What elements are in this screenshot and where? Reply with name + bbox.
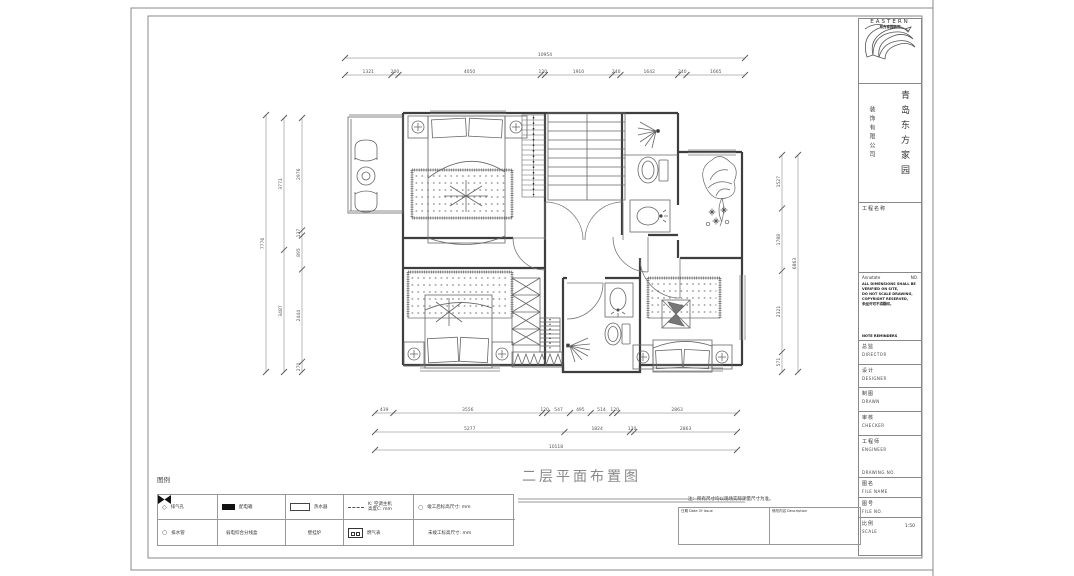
revision-col-header: 修改内容 Description [770,508,860,544]
svg-text:1321: 1321 [362,69,374,75]
svg-text:3487: 3487 [278,305,284,317]
walls [403,113,742,372]
revision-col-header: 日期 Date Of Issue [679,508,770,544]
company-name-box: 青岛东方家园 装饰有限公司 [859,84,921,203]
revision-table: 日期 Date Of Issue 修改内容 Description [678,507,861,545]
cabinet-hatched-icon [540,318,560,352]
drawing-title: 二层平面布置图 [522,466,641,486]
field-engineer: 工程师 ENGINEER DRAWING NO. [859,436,921,478]
svg-text:10954: 10954 [538,52,552,58]
svg-text:3771: 3771 [278,178,284,190]
toilet-icon [605,323,630,345]
field-scale: 比例 SCALE 1:50 [859,518,921,556]
distribution-box-icon [222,504,235,510]
sheet-frame [131,0,933,576]
legend-item: 弱电综合分线盒 [218,520,286,545]
svg-text:1527: 1527 [776,176,782,188]
rug-icon [412,170,512,218]
eastern-logo-icon [859,19,921,67]
svg-text:120: 120 [610,407,619,413]
shower-spray-icon [638,122,660,148]
armchair-icon [355,191,377,212]
legend-label: 图例 [157,474,170,484]
svg-text:240: 240 [612,69,621,75]
note-line: 注：所有尺寸均以现场实际测量尺寸为准。 [688,496,774,502]
annotate-title: Annotate [862,275,880,280]
svg-text:439: 439 [380,407,389,413]
bathroom-middle [567,283,634,362]
windows [420,111,745,371]
vent-hole-icon: ◇ [162,504,167,511]
bedroom-top-furniture [408,116,527,245]
armchair-icon [355,140,377,161]
svg-text:547: 547 [554,407,563,413]
annotate-line: 未经许可不得翻印。 [862,302,918,307]
svg-text:2444: 2444 [296,310,302,322]
double-bed-icon [653,340,712,372]
ac-dashed-line-icon [348,507,364,508]
sink-icon [630,200,670,232]
svg-text:2976: 2976 [296,168,302,180]
sink-icon [605,283,633,317]
annotate-box: Annotate NO. ALL DIMENSIONS SHALL BE VER… [859,273,921,341]
field-checker: 审核 CHECKER [859,412,921,436]
svg-text:895: 895 [296,248,302,257]
svg-text:3556: 3556 [462,407,474,413]
svg-text:10118: 10118 [549,444,563,450]
svg-text:120: 120 [540,407,549,413]
wardrobe-hatched [522,115,545,197]
balcony [348,115,403,213]
svg-text:1642: 1642 [644,69,656,75]
svg-text:5277: 5277 [464,426,476,432]
shower-spray-icon [567,338,591,362]
field-designer: 设计 DESIGNER [859,365,921,388]
doors [513,202,680,319]
bathroom-top [622,122,678,232]
bedroom-bottom-left-furniture [404,278,562,368]
plant-icon [703,156,737,226]
project-name-box: 工程名称 [859,203,921,273]
svg-text:571: 571 [776,358,782,367]
legend-item: ○ 竣工后标高尺寸: mm [414,495,515,520]
legend-item: K: 空调主机 高度C: mm [344,495,414,520]
svg-text:270: 270 [296,362,302,371]
legend-item: 热水器 [286,495,344,520]
field-file-name: 图名 FILE NAME [859,478,921,498]
svg-text:495: 495 [576,407,585,413]
svg-text:1788: 1788 [776,234,782,246]
side-table-icon [357,167,375,185]
svg-text:1824: 1824 [591,426,603,432]
water-heater-icon [290,503,310,511]
field-director: 总监 DIRECTOR [859,341,921,365]
project-label: 工程名称 [859,203,921,212]
pinwheel-table-icon [662,300,690,328]
legend-item: 配电箱 [218,495,286,520]
toilet-icon [638,157,668,183]
svg-text:2863: 2863 [671,407,683,413]
svg-text:4050: 4050 [464,69,476,75]
logo-box: EASTERN 东方家园装饰 [859,19,921,84]
svg-text:120: 120 [628,426,637,432]
svg-text:200: 200 [391,69,400,75]
gas-meter-icon [348,528,363,538]
annotate-footer: NOTE REMINDERS [862,334,897,338]
legend-item: ○ 排水管 [158,520,218,545]
field-drawn: 制图 DRAWN [859,388,921,412]
scale-value: 1:50 [905,524,915,529]
annotate-no: NO. [911,275,918,280]
svg-text:7776: 7776 [260,238,266,250]
flower-icons [706,207,729,226]
company-name: 青岛东方家园 [898,90,911,200]
legend-item: 燃气表 [344,520,414,545]
company-suffix: 装饰有限公司 [867,106,876,196]
staircase [548,113,625,200]
svg-text:2321: 2321 [776,306,782,318]
double-bed-icon [428,116,505,245]
svg-text:514: 514 [597,407,606,413]
drain-pipe-icon: ○ [162,529,167,536]
legend-table: ◇ 排气孔 配电箱 热水器 K: 空调主机 高度C: mm ○ 竣工后标高尺寸:… [157,494,514,546]
drawing-sheet: 1321200405012019102401642240166510954439… [0,0,1074,576]
level-mark-icon: ○ [418,504,423,511]
drawing-no-label: DRAWING NO. [859,468,895,475]
wardrobe-x-icon [512,278,540,345]
svg-text:1910: 1910 [573,69,585,75]
svg-text:120: 120 [538,69,547,75]
svg-text:6863: 6863 [792,258,798,270]
svg-text:2863: 2863 [680,426,692,432]
rug-icon [648,278,720,318]
svg-text:240: 240 [678,69,687,75]
field-file-no: 图号 FILE NO. [859,498,921,518]
svg-text:137: 137 [296,229,302,238]
legend-item: 未竣工标高尺寸: mm [414,520,515,545]
svg-text:1665: 1665 [710,69,722,75]
title-block: EASTERN 东方家园装饰 青岛东方家园 装饰有限公司 工程名称 Annota… [858,18,922,556]
legend-item: 壁挂炉 [286,520,344,545]
